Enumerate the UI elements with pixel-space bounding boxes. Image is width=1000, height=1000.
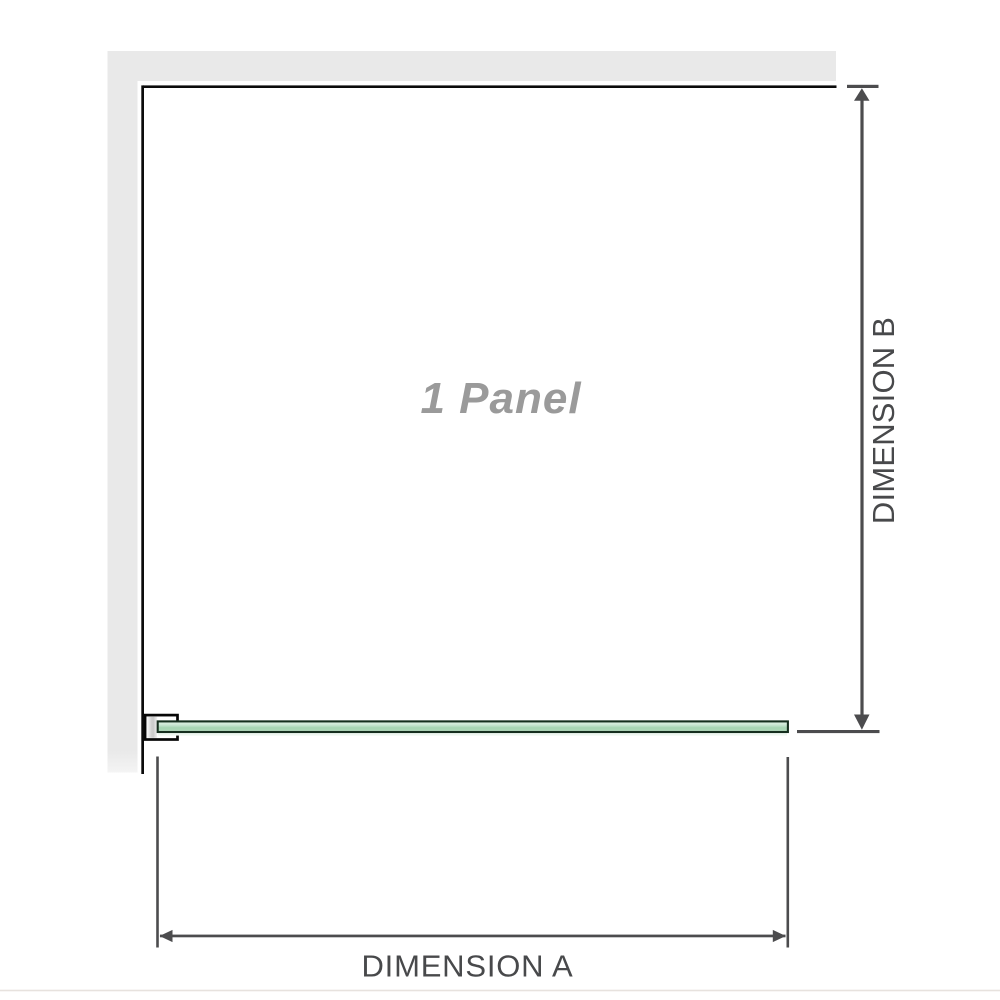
svg-text:DIMENSION B: DIMENSION B (866, 317, 901, 524)
svg-text:1 Panel: 1 Panel (420, 374, 581, 423)
svg-text:DIMENSION A: DIMENSION A (361, 949, 573, 984)
